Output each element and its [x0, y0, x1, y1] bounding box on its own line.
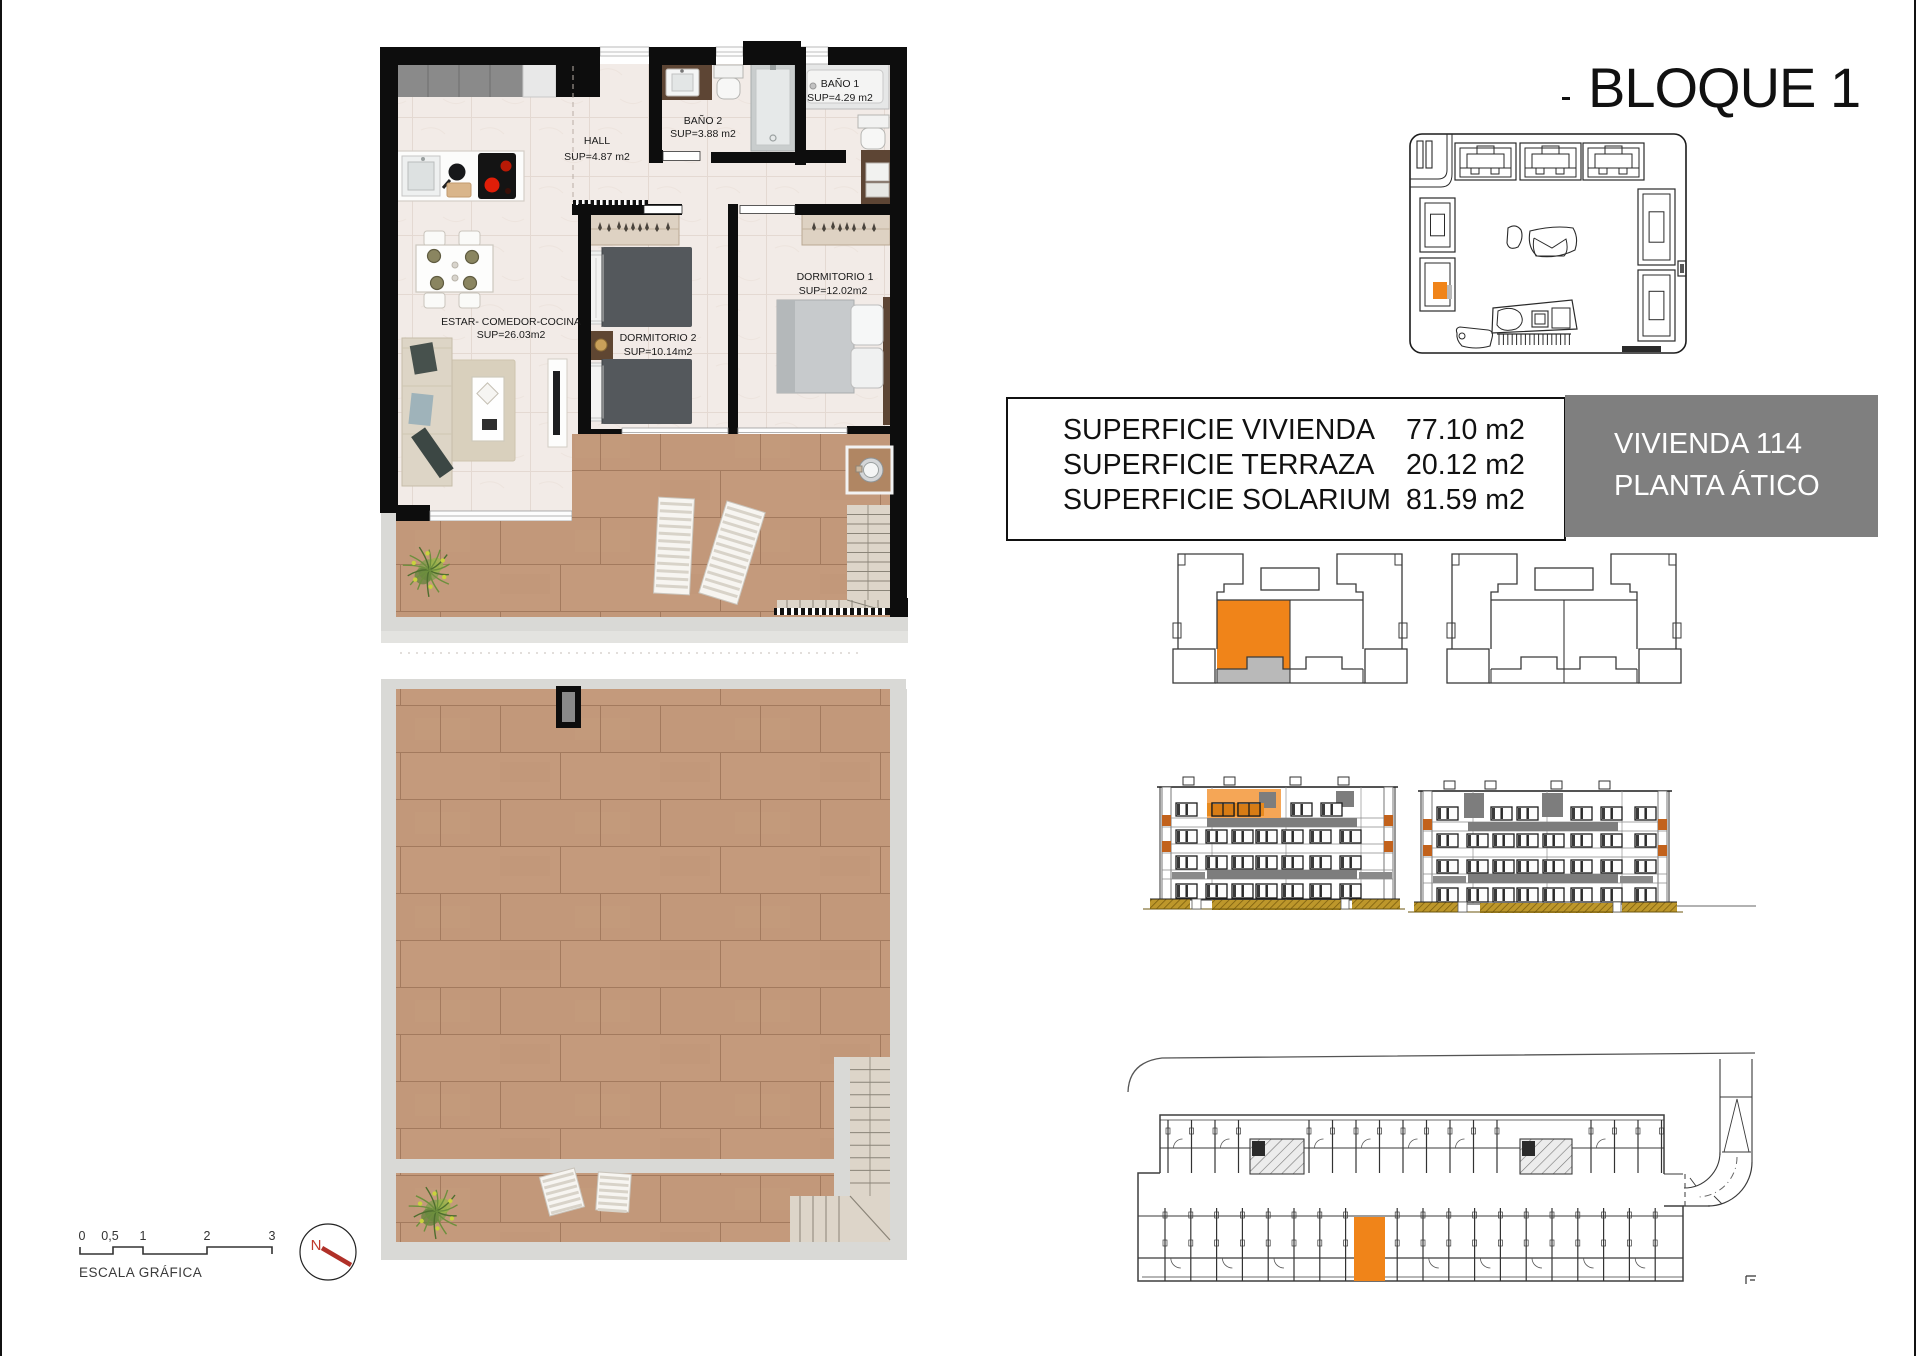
svg-text:DORMITORIO 2: DORMITORIO 2 [620, 332, 697, 344]
svg-text:SUP=4.29 m2: SUP=4.29 m2 [807, 92, 873, 104]
svg-text:HALL: HALL [584, 135, 610, 147]
svg-text:SUPERFICIE TERRAZA: SUPERFICIE TERRAZA [1063, 449, 1374, 481]
svg-text:0: 0 [79, 1229, 86, 1243]
svg-text:SUPERFICIE SOLARIUM: SUPERFICIE SOLARIUM [1063, 484, 1391, 516]
svg-text:2: 2 [204, 1229, 211, 1243]
svg-text:0,5: 0,5 [101, 1229, 118, 1243]
svg-text:SUP=3.88 m2: SUP=3.88 m2 [670, 128, 736, 140]
svg-text:VIVIENDA 114: VIVIENDA 114 [1614, 428, 1802, 460]
svg-text:SUPERFICIE VIVIENDA: SUPERFICIE VIVIENDA [1063, 414, 1375, 446]
svg-text:SUP=10.14m2: SUP=10.14m2 [624, 346, 693, 358]
svg-text:SUP=12.02m2: SUP=12.02m2 [799, 285, 868, 297]
svg-text:BAÑO 1: BAÑO 1 [821, 77, 860, 90]
svg-text:77.10 m2: 77.10 m2 [1406, 414, 1525, 446]
svg-text:N: N [311, 1237, 322, 1254]
svg-text:ESTAR- COMEDOR-COCINA: ESTAR- COMEDOR-COCINA [441, 316, 581, 328]
svg-text:BLOQUE 1: BLOQUE 1 [1588, 56, 1860, 119]
svg-text:SUP=26.03m2: SUP=26.03m2 [477, 329, 546, 341]
svg-text:1: 1 [140, 1229, 147, 1243]
svg-text:BAÑO 2: BAÑO 2 [684, 114, 723, 127]
svg-text:20.12 m2: 20.12 m2 [1406, 449, 1525, 481]
svg-text:SUP=4.87 m2: SUP=4.87 m2 [564, 151, 630, 163]
svg-text:PLANTA ÁTICO: PLANTA ÁTICO [1614, 469, 1820, 502]
svg-text:DORMITORIO 1: DORMITORIO 1 [797, 271, 874, 283]
svg-text:81.59 m2: 81.59 m2 [1406, 484, 1525, 516]
svg-text:ESCALA GRÁFICA: ESCALA GRÁFICA [79, 1265, 202, 1280]
svg-text:3: 3 [269, 1229, 276, 1243]
